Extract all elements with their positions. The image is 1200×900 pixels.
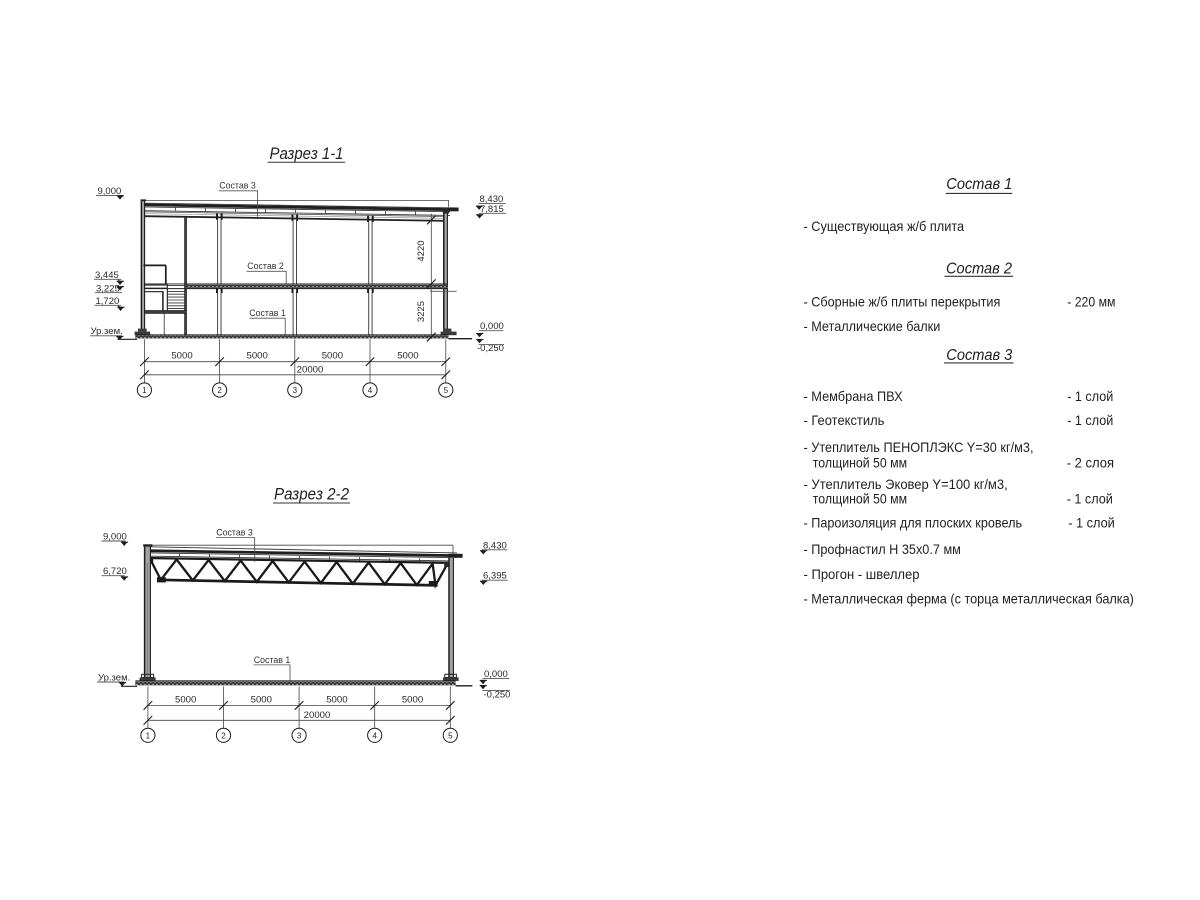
svg-text:Состав 3: Состав 3 <box>219 181 256 191</box>
svg-text:Состав 3: Состав 3 <box>216 528 253 538</box>
svg-text:5: 5 <box>448 731 453 740</box>
svg-text:- Металлические балки: - Металлические балки <box>804 318 941 334</box>
svg-text:- 2 слоя: - 2 слоя <box>1067 454 1114 470</box>
svg-text:2: 2 <box>221 731 226 740</box>
svg-text:5000: 5000 <box>326 695 347 706</box>
svg-text:- Утеплитель ПЕНОПЛЭКС Y=30 кг: - Утеплитель ПЕНОПЛЭКС Y=30 кг/м3, <box>804 439 1034 455</box>
svg-text:5000: 5000 <box>397 351 418 362</box>
svg-text:4: 4 <box>368 386 373 395</box>
svg-text:20000: 20000 <box>304 710 331 721</box>
svg-text:4220: 4220 <box>416 240 427 261</box>
svg-text:толщиной 50 мм: толщиной 50 мм <box>813 454 907 470</box>
svg-text:3225: 3225 <box>416 301 427 322</box>
svg-text:2: 2 <box>217 386 222 395</box>
svg-text:- Геотекстиль: - Геотекстиль <box>804 412 885 428</box>
svg-text:5: 5 <box>444 386 449 395</box>
svg-text:Состав 1: Состав 1 <box>249 308 286 318</box>
svg-text:- Прогон - швеллер: - Прогон - швеллер <box>804 566 920 582</box>
svg-text:4: 4 <box>372 731 377 740</box>
svg-text:1: 1 <box>146 731 151 740</box>
svg-text:5000: 5000 <box>322 351 343 362</box>
svg-text:-0,250: -0,250 <box>484 690 511 701</box>
svg-text:- Утеплитель Эковер Y=100 кг/м: - Утеплитель Эковер Y=100 кг/м3, <box>804 476 1008 492</box>
svg-text:- Сборные ж/б плиты перекрытия: - Сборные ж/б плиты перекрытия <box>804 294 1001 310</box>
svg-text:Разрез 2-2: Разрез 2-2 <box>274 485 349 504</box>
svg-text:- Металлическая ферма (с торца: - Металлическая ферма (с торца металличе… <box>804 591 1134 607</box>
svg-text:- 1 слой: - 1 слой <box>1067 491 1113 507</box>
svg-text:толщиной 50 мм: толщиной 50 мм <box>813 491 907 507</box>
svg-text:3: 3 <box>297 731 302 740</box>
svg-text:5000: 5000 <box>247 351 268 362</box>
svg-text:- Мембрана ПВХ: - Мембрана ПВХ <box>804 388 904 404</box>
svg-text:- 1 слой: - 1 слой <box>1067 412 1113 428</box>
svg-text:- 1 слой: - 1 слой <box>1067 388 1113 404</box>
svg-text:5000: 5000 <box>175 695 196 706</box>
svg-text:- 1 слой: - 1 слой <box>1068 515 1115 531</box>
svg-text:- 220 мм: - 220 мм <box>1067 294 1115 310</box>
svg-text:5000: 5000 <box>402 695 423 706</box>
svg-text:- Пароизоляция для плоских кро: - Пароизоляция для плоских кровель <box>804 515 1023 531</box>
svg-text:Состав 2: Состав 2 <box>247 261 284 271</box>
svg-text:- Существующая ж/б плита: - Существующая ж/б плита <box>804 218 965 234</box>
svg-text:5000: 5000 <box>251 695 272 706</box>
svg-text:3: 3 <box>293 386 298 395</box>
svg-text:5000: 5000 <box>171 351 192 362</box>
svg-text:Разрез 1-1: Разрез 1-1 <box>270 144 344 163</box>
svg-text:Состав 3: Состав 3 <box>946 347 1012 364</box>
svg-text:Состав 1: Состав 1 <box>946 176 1012 193</box>
svg-text:Состав 1: Состав 1 <box>254 655 291 665</box>
svg-text:20000: 20000 <box>297 365 324 376</box>
svg-text:Состав 2: Состав 2 <box>946 261 1012 278</box>
svg-text:- Профнастил Н 35х0.7 мм: - Профнастил Н 35х0.7 мм <box>804 541 961 557</box>
svg-text:1: 1 <box>142 386 147 395</box>
